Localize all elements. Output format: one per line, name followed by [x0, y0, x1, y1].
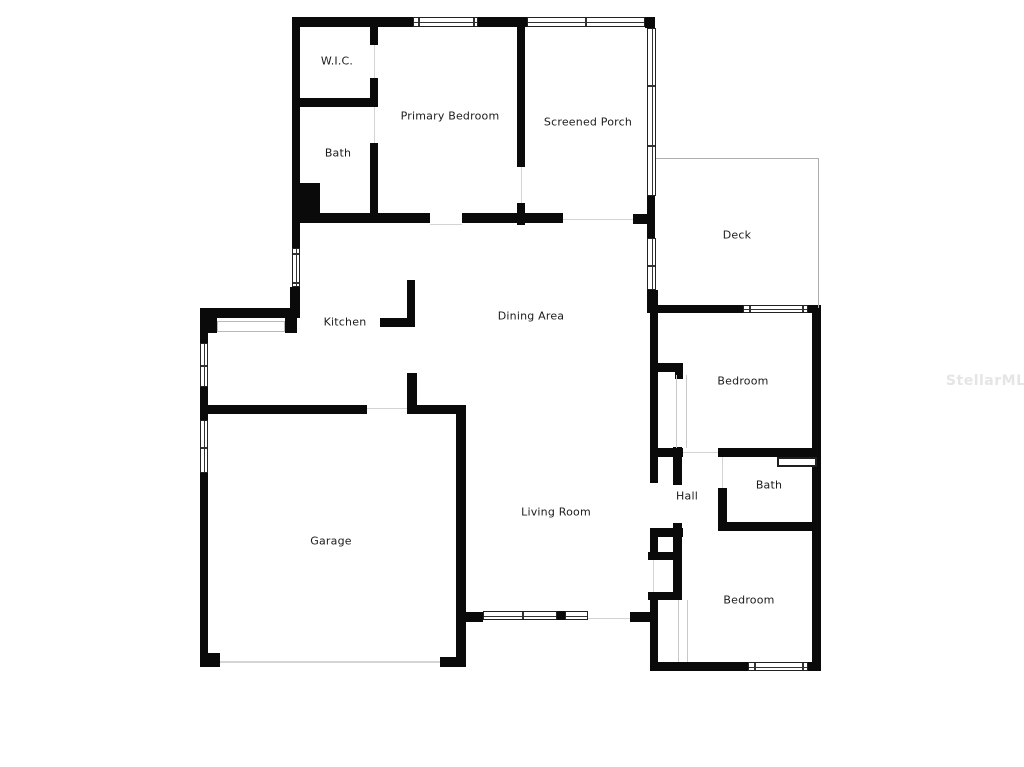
closet-line — [687, 600, 688, 662]
room-label-living-room: Living Room — [521, 506, 591, 519]
door-sill-line — [521, 167, 522, 203]
door-sill-line — [220, 661, 440, 663]
wall-segment — [650, 662, 748, 671]
door-sill-line — [588, 618, 630, 619]
window-mullion — [802, 663, 804, 670]
wall-segment — [292, 17, 413, 27]
window — [200, 420, 208, 473]
wall-segment — [647, 196, 655, 238]
door-sill-line — [722, 457, 723, 488]
wall-segment — [650, 305, 743, 313]
wall-segment — [650, 363, 683, 372]
wall-segment — [557, 611, 565, 620]
window-mullion — [648, 145, 655, 147]
door-sill-line — [430, 224, 462, 225]
wall-segment — [812, 305, 821, 531]
window-center-line — [652, 29, 653, 195]
closet-line — [676, 375, 677, 448]
kitchen-counter — [217, 321, 285, 332]
wall-segment — [718, 522, 821, 531]
wall-segment — [517, 20, 525, 167]
wall-segment — [370, 20, 378, 45]
door-sill-line — [374, 45, 375, 78]
wall-segment — [650, 592, 658, 670]
wall-segment — [407, 373, 417, 414]
window-mullion — [201, 447, 207, 449]
room-label-bath-right: Bath — [756, 479, 782, 492]
wall-segment — [380, 318, 415, 327]
window-center-line — [744, 309, 807, 310]
window-mullion — [648, 265, 655, 267]
window — [413, 17, 478, 27]
window-mullion — [522, 612, 524, 619]
room-label-bedroom-bottom: Bedroom — [723, 594, 774, 607]
room-label-screened-porch: Screened Porch — [544, 116, 632, 129]
closet-line — [678, 600, 679, 662]
closet-line — [686, 375, 687, 448]
wall-segment — [808, 662, 821, 671]
bath-vanity — [777, 457, 817, 467]
room-label-kitchen: Kitchen — [324, 316, 367, 329]
wall-segment — [673, 523, 682, 600]
wall-segment — [440, 657, 466, 667]
wall-segment — [517, 203, 525, 225]
door-sill-line — [374, 107, 375, 143]
wall-segment — [456, 612, 483, 622]
wall-segment — [203, 405, 367, 414]
wall-segment — [200, 318, 208, 343]
window-center-line — [749, 667, 807, 668]
room-label-wic: W.I.C. — [321, 55, 353, 68]
window — [748, 662, 808, 671]
window — [483, 611, 557, 620]
window-mullion — [293, 253, 299, 255]
door-sill-line — [683, 452, 718, 453]
window-mullion — [201, 365, 207, 367]
window-mullion — [473, 18, 475, 26]
window-center-line — [484, 616, 556, 617]
deck-outline — [818, 158, 819, 308]
door-sill-line — [653, 560, 654, 592]
floor-plan-canvas: W.I.C. Primary Bedroom Screened Porch Ba… — [0, 0, 1024, 767]
room-label-primary-bedroom: Primary Bedroom — [401, 110, 500, 123]
wall-segment — [645, 17, 655, 28]
wall-segment — [292, 98, 378, 107]
wall-segment — [650, 313, 658, 483]
window-center-line — [566, 616, 587, 617]
wall-segment — [812, 522, 821, 671]
wall-segment — [200, 387, 208, 420]
room-label-dining-area: Dining Area — [498, 310, 565, 323]
wall-segment — [200, 473, 208, 657]
room-label-garage: Garage — [310, 535, 351, 548]
window-mullion — [293, 282, 299, 284]
window-mullion — [418, 18, 420, 26]
mls-watermark: StellarMLS — [946, 373, 1024, 389]
wall-segment — [630, 612, 657, 622]
window — [647, 28, 656, 196]
window-mullion — [585, 18, 587, 26]
window-mullion — [754, 663, 756, 670]
door-sill-line — [367, 408, 407, 409]
door-sill-line — [563, 219, 633, 220]
wall-segment — [292, 213, 430, 223]
window — [565, 611, 588, 620]
window-center-line — [652, 239, 653, 289]
room-label-deck: Deck — [723, 229, 751, 242]
room-label-bath-top: Bath — [325, 147, 351, 160]
wall-segment — [285, 318, 297, 333]
window — [200, 343, 208, 387]
wall-segment — [673, 447, 682, 485]
wall-segment — [718, 448, 821, 457]
deck-outline — [652, 158, 819, 159]
window-mullion — [749, 306, 751, 312]
window-mullion — [648, 85, 655, 87]
window — [743, 305, 808, 313]
wall-segment — [292, 183, 320, 217]
room-label-hall: Hall — [676, 490, 698, 503]
room-label-bedroom-middle: Bedroom — [717, 375, 768, 388]
wall-segment — [200, 653, 220, 667]
wall-segment — [462, 213, 563, 223]
window — [292, 248, 300, 287]
wall-segment — [208, 318, 217, 333]
window-mullion — [802, 306, 804, 312]
window — [647, 238, 656, 290]
window-center-line — [414, 22, 477, 23]
window — [527, 17, 645, 27]
wall-segment — [456, 405, 466, 667]
wall-segment — [370, 143, 378, 217]
wall-segment — [200, 308, 300, 318]
